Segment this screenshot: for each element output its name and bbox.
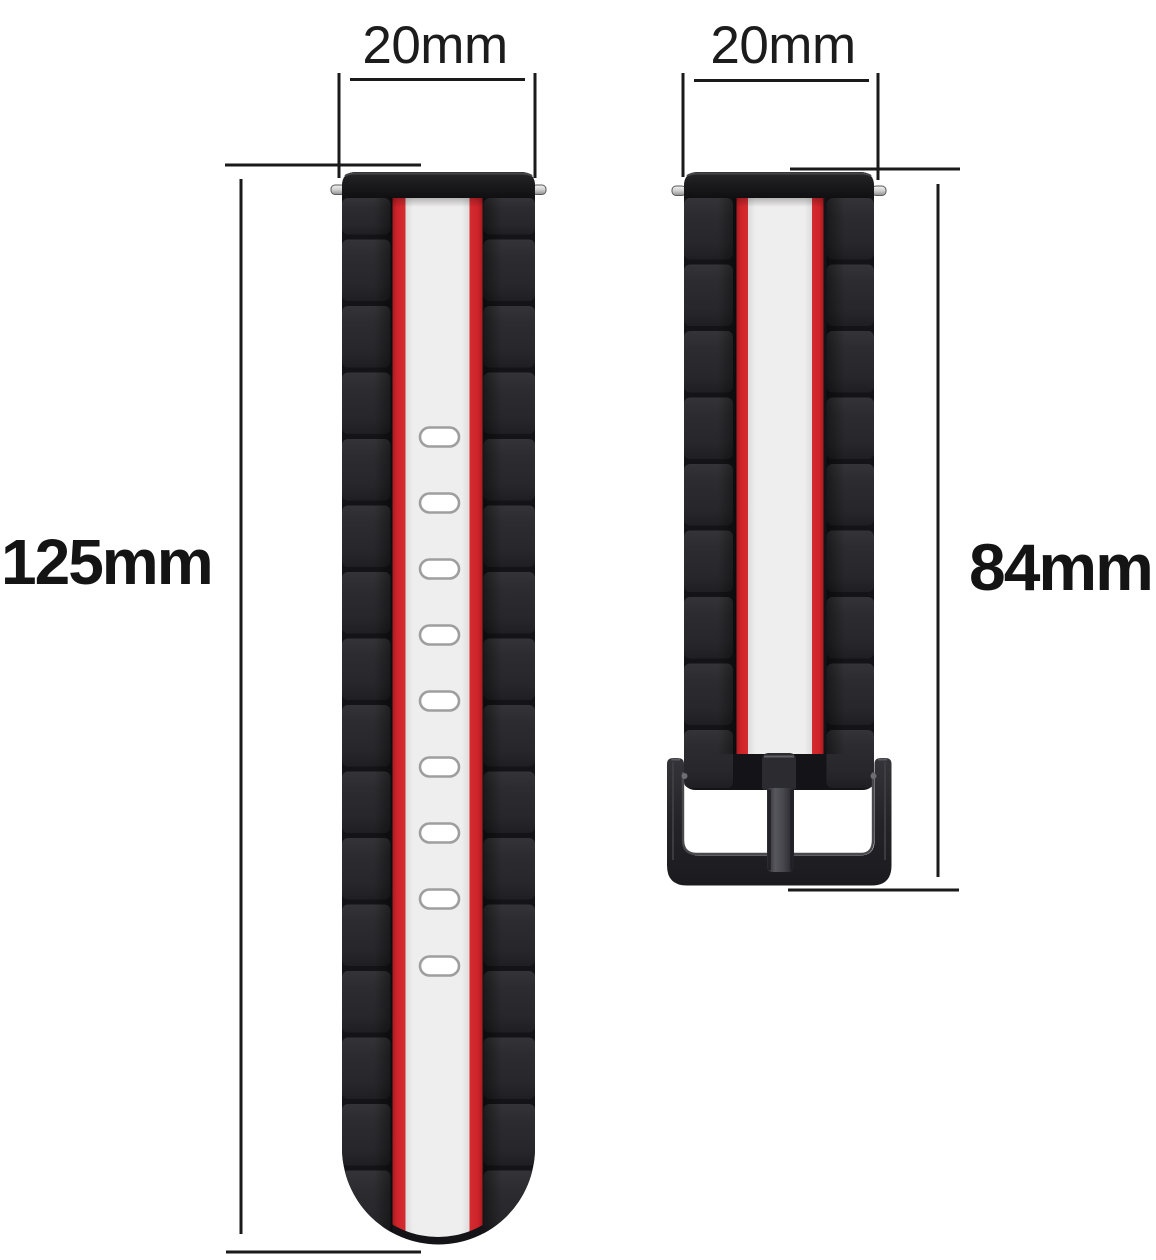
svg-text:84mm: 84mm [969, 530, 1152, 604]
svg-text:20mm: 20mm [710, 16, 855, 75]
svg-text:20mm: 20mm [362, 16, 507, 75]
svg-text:125mm: 125mm [1, 526, 212, 598]
